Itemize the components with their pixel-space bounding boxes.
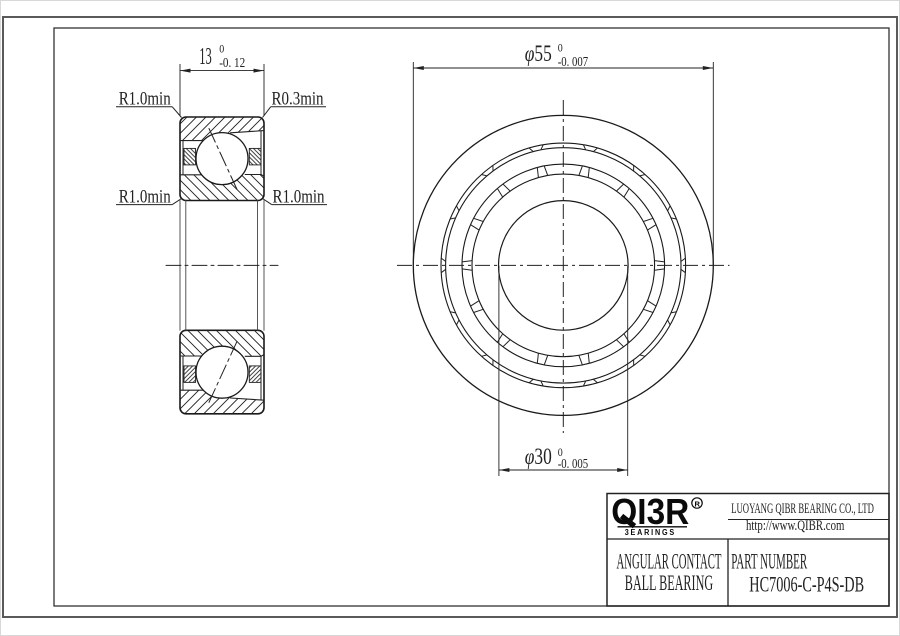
svg-text:-0. 005: -0. 005 xyxy=(558,456,589,471)
svg-text:0: 0 xyxy=(558,41,563,55)
svg-text:R: R xyxy=(695,500,701,509)
svg-text:PART NUMBER: PART NUMBER xyxy=(731,548,807,573)
svg-text:OI3R: OI3R xyxy=(611,491,689,532)
svg-text:13: 13 xyxy=(199,44,212,70)
svg-text:φ55: φ55 xyxy=(525,41,552,66)
svg-text:φ30: φ30 xyxy=(525,444,552,469)
svg-text:-0. 007: -0. 007 xyxy=(558,54,589,69)
svg-text:0: 0 xyxy=(219,41,224,55)
svg-text:BALL BEARING: BALL BEARING xyxy=(625,570,714,595)
svg-text:3EARINGS: 3EARINGS xyxy=(625,528,676,537)
svg-text:LUOYANG QIBR BEARING CO., LTD: LUOYANG QIBR BEARING CO., LTD xyxy=(731,501,874,517)
svg-text:http://www.QIBR.com: http://www.QIBR.com xyxy=(746,518,845,534)
svg-text:HC7006-C-P4S-DB: HC7006-C-P4S-DB xyxy=(749,572,864,597)
svg-text:-0. 12: -0. 12 xyxy=(219,55,245,70)
